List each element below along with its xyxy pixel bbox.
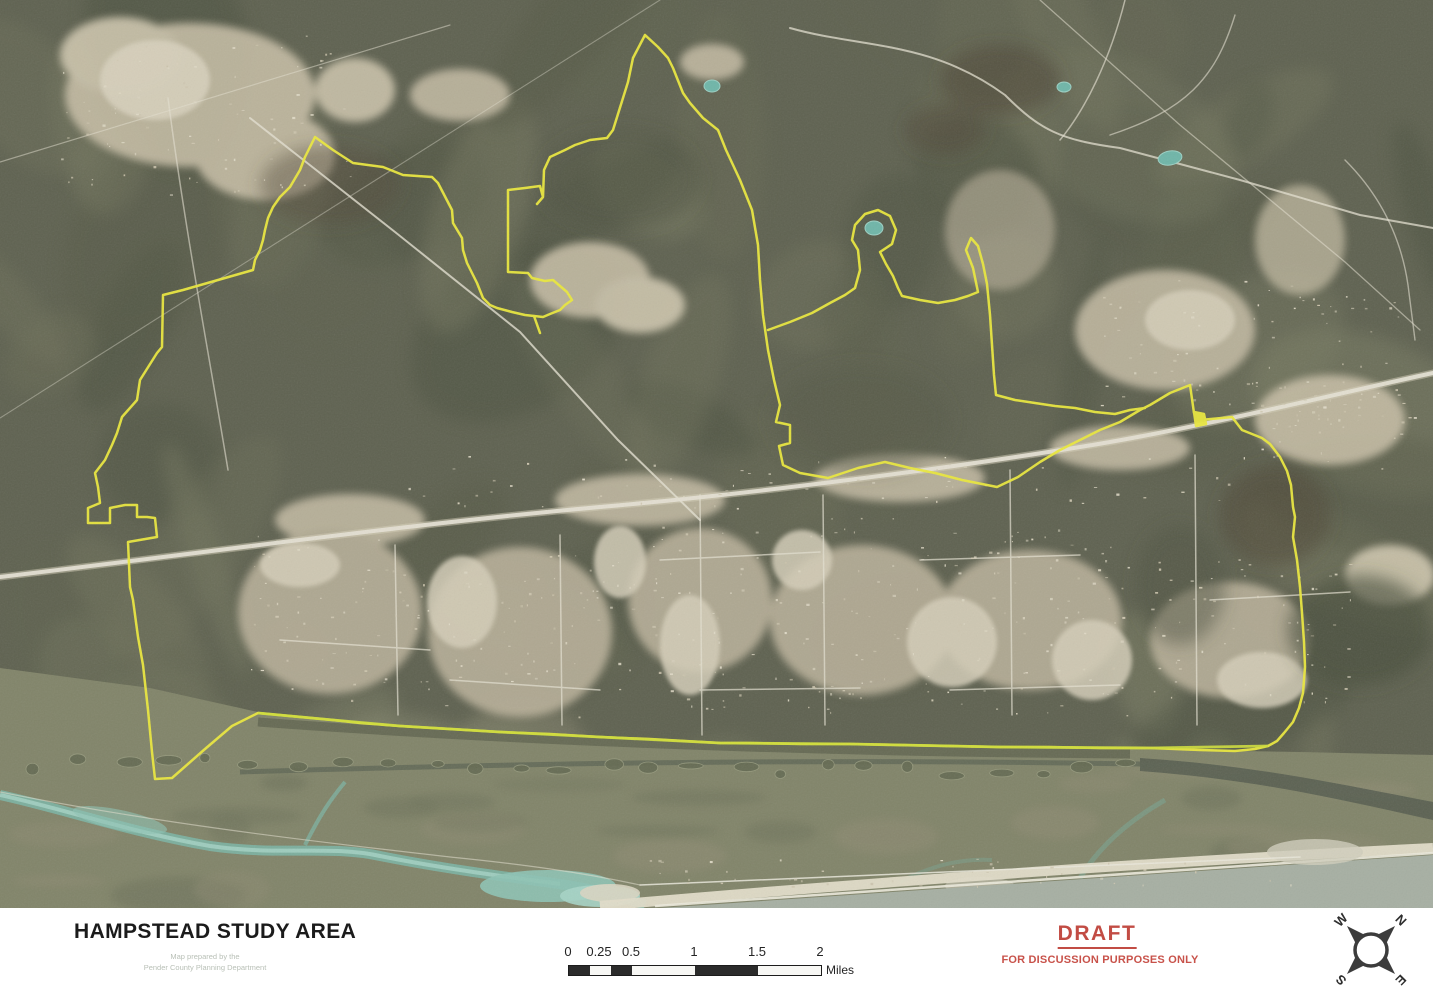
- scale-bar-segment: [758, 966, 821, 975]
- attribution-line-1: Map prepared by the: [144, 952, 267, 963]
- scale-bar-label: 0: [564, 944, 571, 959]
- draft-watermark: DRAFT: [1058, 922, 1137, 949]
- scale-bar-segment: [632, 966, 695, 975]
- scale-bar: 0 0.25 0.5 1 1.5 2 Miles: [558, 944, 868, 986]
- scale-bar-label: 0.5: [622, 944, 640, 959]
- scale-bar-segment: [569, 966, 590, 975]
- attribution-line-2: Pender County Planning Department: [144, 963, 267, 974]
- scale-bar-label: 1.5: [748, 944, 766, 959]
- scanned-map-page: HAMPSTEAD STUDY AREA Map prepared by the…: [0, 0, 1433, 1003]
- scale-bar-segment: [611, 966, 632, 975]
- scan-tint: [0, 0, 1433, 908]
- aerial-map: [0, 0, 1433, 909]
- scale-bar-label: 0.25: [586, 944, 611, 959]
- map-attribution: Map prepared by the Pender County Planni…: [144, 952, 267, 973]
- scale-bar-segment: [695, 966, 758, 975]
- compass-circle: [1355, 934, 1387, 966]
- scale-bar-label: 2: [816, 944, 823, 959]
- scale-bar-segment: [590, 966, 611, 975]
- map-footer: HAMPSTEAD STUDY AREA Map prepared by the…: [0, 908, 1433, 1003]
- compass-letter-e: E: [1392, 972, 1409, 989]
- scale-bar-label: 1: [690, 944, 697, 959]
- compass-letter-s: S: [1332, 971, 1349, 988]
- aerial-map-canvas: [0, 0, 1433, 908]
- compass-rose: N E S W: [1316, 902, 1426, 1003]
- scale-bar-unit: Miles: [826, 963, 854, 977]
- map-title: HAMPSTEAD STUDY AREA: [74, 920, 356, 944]
- draft-note: FOR DISCUSSION PURPOSES ONLY: [1001, 954, 1198, 966]
- scale-bar-segments: [568, 965, 822, 976]
